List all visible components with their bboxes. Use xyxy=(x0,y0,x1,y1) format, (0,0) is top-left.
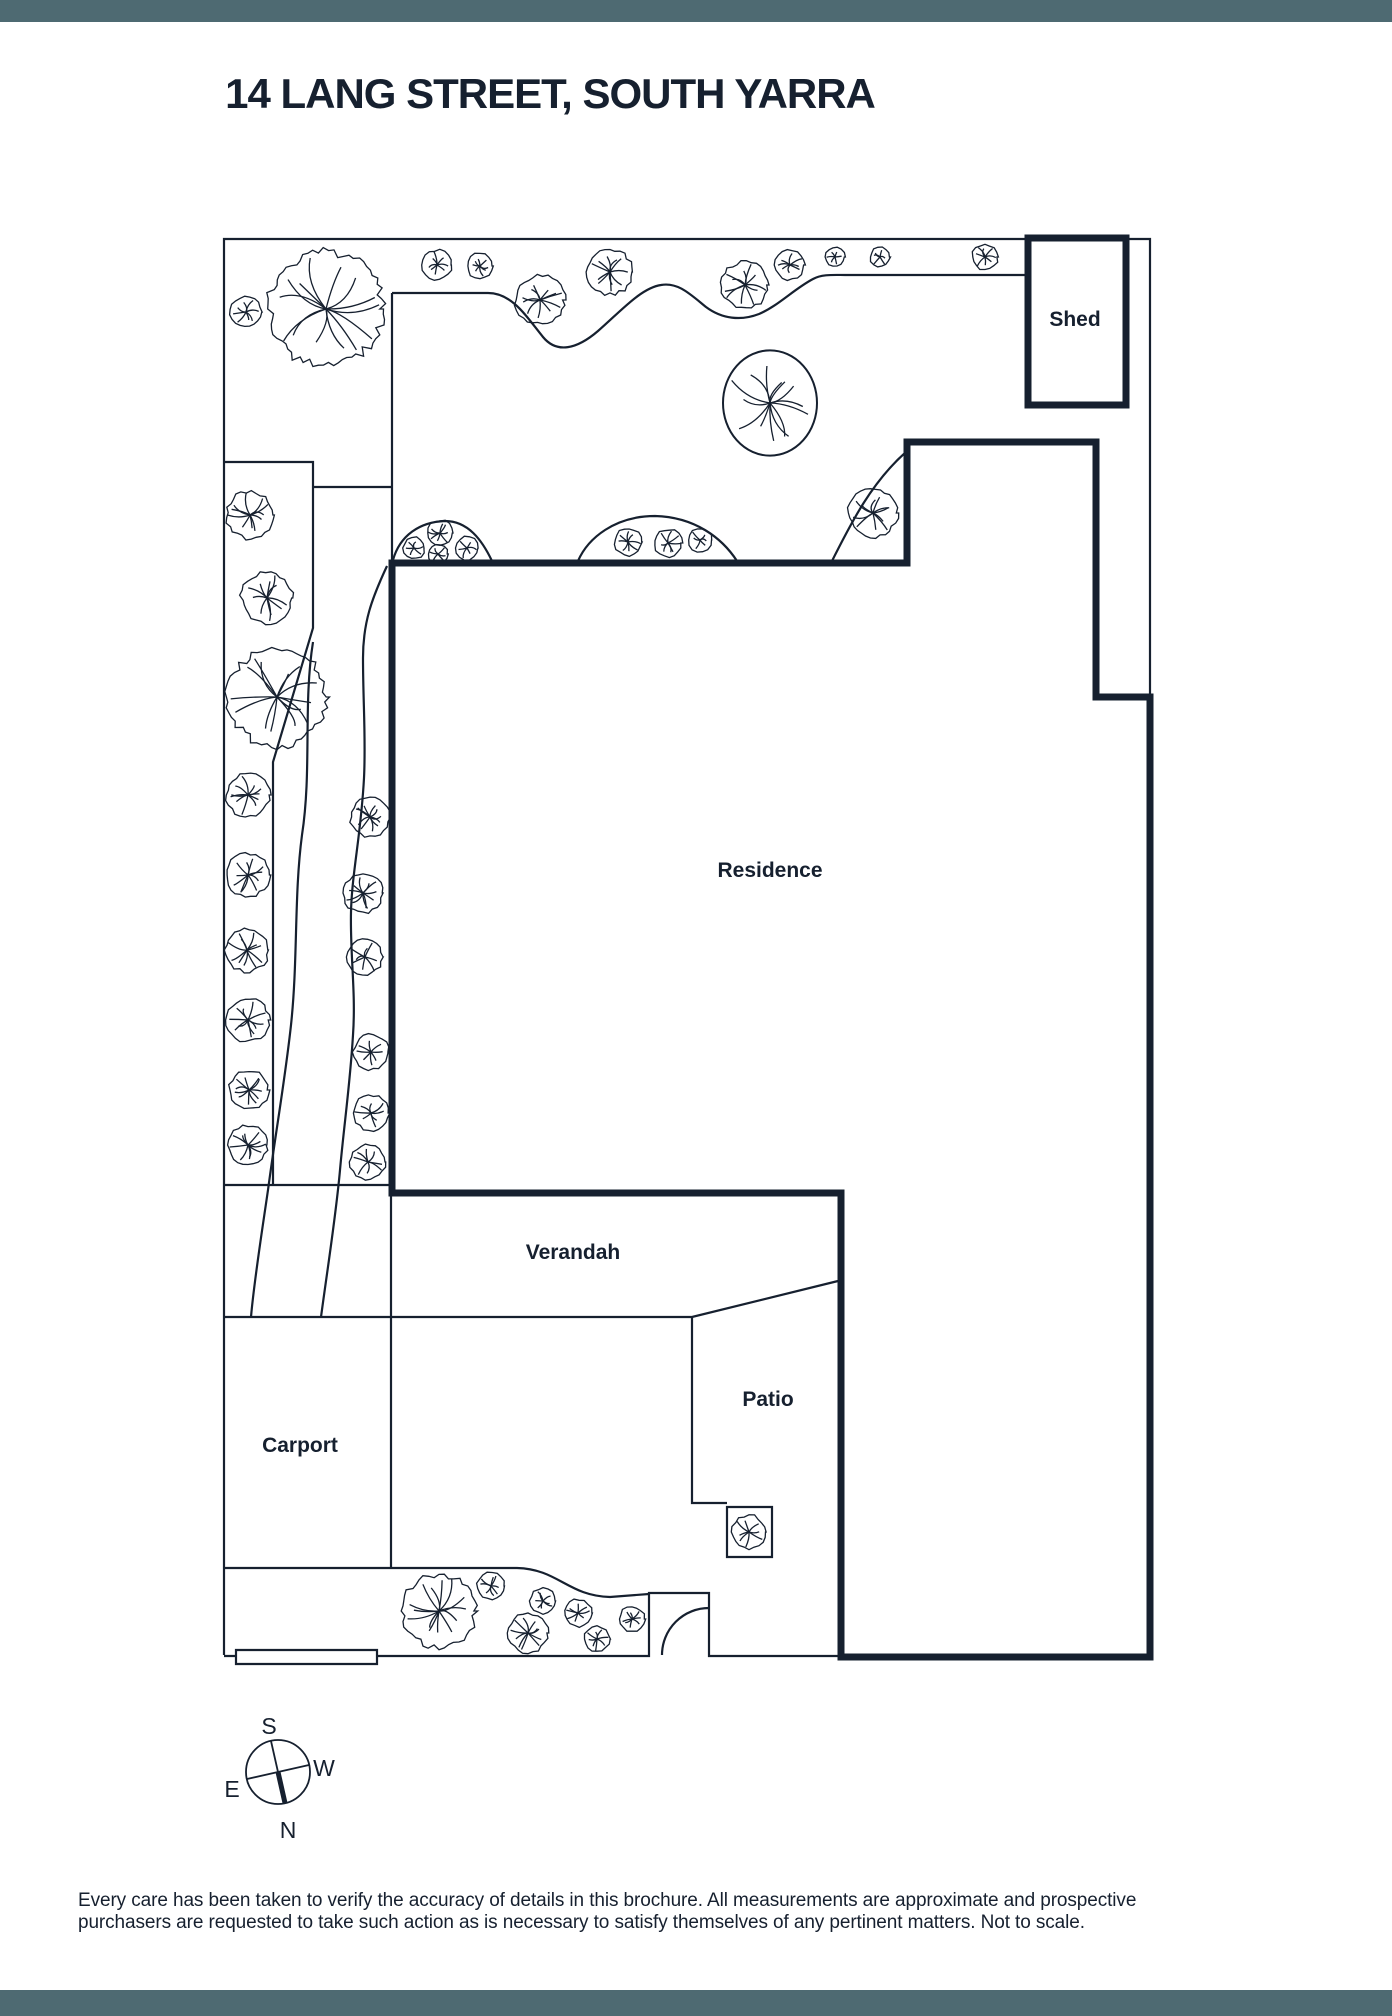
plan-label-carport: Carport xyxy=(262,1434,338,1457)
tree-symbol xyxy=(226,999,271,1042)
disclaimer-line-2: purchasers are requested to take such ac… xyxy=(78,1912,1328,1934)
tree-branch xyxy=(261,598,267,614)
tree-branch xyxy=(237,863,248,875)
tree-symbol xyxy=(267,248,386,367)
tree-branch xyxy=(668,543,681,544)
tree-symbol xyxy=(774,250,805,281)
tree-branch xyxy=(481,1579,491,1586)
tree-branch xyxy=(440,533,448,534)
tree-branch xyxy=(352,949,365,957)
tree-branch xyxy=(832,257,836,262)
tree-branch xyxy=(661,533,668,543)
labels-layer: ShedResidenceVerandahPatioCarport xyxy=(262,308,1101,1457)
tree-symbol xyxy=(352,1034,388,1071)
tree-branch xyxy=(696,540,700,549)
plan-line-20 xyxy=(831,452,906,563)
tree-branch xyxy=(367,1162,369,1173)
tree-branch xyxy=(588,1633,598,1639)
tree-branch xyxy=(245,493,250,516)
plan-label-residence: Residence xyxy=(717,859,822,882)
tree-branch xyxy=(243,1009,248,1020)
tree-symbol xyxy=(401,1574,478,1650)
tree-branch xyxy=(770,403,789,436)
tree-symbol xyxy=(349,1144,385,1180)
disclaimer-line-1: Every care has been taken to verify the … xyxy=(78,1890,1328,1912)
tree-branch xyxy=(238,308,246,312)
tree-branch xyxy=(534,285,540,300)
tree-branch xyxy=(486,1586,491,1593)
compass-needle-e xyxy=(247,1772,278,1779)
tree-branch xyxy=(410,548,414,555)
tree-branch xyxy=(235,1020,248,1030)
tree-branch xyxy=(538,300,540,318)
tree-branch xyxy=(249,1090,250,1105)
tree-branch xyxy=(440,533,448,543)
plan-line-2 xyxy=(662,1608,709,1655)
tree-branch xyxy=(240,1145,248,1160)
tree-branch xyxy=(732,380,770,403)
tree-symbol xyxy=(228,1125,268,1164)
tree-symbol xyxy=(871,247,891,267)
tree-symbol xyxy=(477,1572,505,1600)
tree-branch xyxy=(761,403,770,426)
tree-symbol xyxy=(229,1072,270,1109)
tree-branch xyxy=(371,1052,383,1053)
tree-branch xyxy=(255,659,277,697)
tree-branch xyxy=(358,1162,368,1175)
tree-symbol xyxy=(226,773,272,817)
tree-branch xyxy=(267,598,287,605)
disclaimer-text: Every care has been taken to verify the … xyxy=(78,1890,1328,1934)
tree-branch xyxy=(597,1639,605,1646)
tree-symbol xyxy=(614,529,642,556)
tree-branch xyxy=(589,1639,597,1640)
tree-symbol xyxy=(689,529,712,552)
tree-symbol xyxy=(586,250,632,296)
tree-branch xyxy=(439,1580,442,1611)
tree-branch xyxy=(788,265,790,273)
tree-branch xyxy=(434,252,437,265)
tree-branch xyxy=(326,309,344,348)
compass-label-s: S xyxy=(261,1713,276,1739)
tree-branch xyxy=(874,257,880,264)
tree-symbol xyxy=(227,853,271,898)
plan-line-8 xyxy=(321,566,387,1317)
tree-symbol xyxy=(655,530,683,558)
tree-symbol xyxy=(240,572,294,625)
tree-branch xyxy=(371,1052,376,1061)
tree-branch xyxy=(242,795,248,815)
tree-symbol xyxy=(972,244,998,269)
plan-line-7 xyxy=(251,642,313,1317)
tree-branch xyxy=(413,542,415,548)
tree-symbol xyxy=(403,537,425,559)
tree-branch xyxy=(835,256,842,257)
tree-branch xyxy=(414,547,423,549)
tree-branch xyxy=(700,540,705,545)
tree-symbol xyxy=(353,1095,390,1132)
tree-branch xyxy=(741,285,745,304)
tree-symbol xyxy=(723,350,817,455)
compass-label-n: N xyxy=(280,1817,297,1843)
tree-branch xyxy=(363,1113,371,1119)
tree-symbol xyxy=(585,1626,611,1652)
tree-symbol xyxy=(224,928,268,973)
site-plan-diagram: ShedResidenceVerandahPatioCarportSWEN xyxy=(0,0,1392,2016)
compass-rose: SWEN xyxy=(224,1713,335,1843)
tree-branch xyxy=(228,515,250,517)
tree-branch xyxy=(326,298,375,310)
plan-label-shed: Shed xyxy=(1049,308,1100,331)
tree-branch xyxy=(623,542,628,551)
tree-branch xyxy=(632,1619,639,1624)
tree-branch xyxy=(597,1637,608,1639)
tree-symbol xyxy=(507,1613,549,1654)
plan-line-13 xyxy=(692,1317,727,1503)
plan-label-patio: Patio xyxy=(742,1388,793,1411)
tree-symbol xyxy=(226,491,274,540)
tree-branch xyxy=(610,271,628,273)
tree-branch xyxy=(368,1152,374,1163)
tree-symbol xyxy=(350,797,391,837)
tree-branch xyxy=(460,541,467,548)
compass-label-e: E xyxy=(224,1776,239,1802)
tree-symbol xyxy=(343,874,383,914)
tree-symbol xyxy=(468,253,493,278)
tree-branch xyxy=(363,957,365,970)
tree-branch xyxy=(438,548,445,554)
tree-branch xyxy=(232,950,248,960)
tree-branch xyxy=(229,1019,248,1020)
tree-branch xyxy=(790,259,802,265)
tree-symbol xyxy=(428,520,453,545)
tree-branch xyxy=(370,1104,372,1114)
tree-branch xyxy=(437,265,444,270)
plan-line-18 xyxy=(393,521,492,561)
compass-needle-w xyxy=(278,1765,309,1772)
tree-symbol xyxy=(456,536,479,560)
bold-walls-layer xyxy=(392,238,1150,1657)
tree-symbol xyxy=(529,1588,555,1615)
residence-outline xyxy=(392,442,1150,1657)
thin-lines-layer xyxy=(224,239,1150,1664)
plan-line-4 xyxy=(225,462,313,1185)
tree-branch xyxy=(371,1113,376,1127)
tree-branch xyxy=(985,257,986,265)
plan-line-3 xyxy=(236,1650,377,1664)
tree-symbol xyxy=(565,1599,593,1627)
bottom-accent-bar xyxy=(0,1990,1392,2016)
tree-symbol xyxy=(225,648,330,750)
plan-label-verandah: Verandah xyxy=(526,1241,621,1264)
tree-branch xyxy=(293,309,326,335)
tree-branch xyxy=(432,529,441,533)
tree-branch xyxy=(599,261,610,272)
tree-branch xyxy=(668,536,679,543)
trees-layer xyxy=(224,244,998,1653)
tree-branch xyxy=(528,1633,539,1646)
tree-branch xyxy=(480,260,486,266)
tree-branch xyxy=(361,817,370,829)
tree-symbol xyxy=(720,261,769,308)
tree-branch xyxy=(237,875,249,876)
tree-branch xyxy=(235,786,248,795)
tree-branch xyxy=(354,1112,371,1113)
tree-branch xyxy=(408,1611,439,1619)
tree-branch xyxy=(316,309,327,342)
plan-line-19 xyxy=(578,516,737,561)
tree-symbol xyxy=(514,274,566,323)
tree-branch xyxy=(880,257,885,264)
tree-branch xyxy=(540,300,560,307)
tree-symbol xyxy=(848,489,899,539)
compass-needle-n xyxy=(278,1772,285,1803)
tree-branch xyxy=(538,1601,543,1608)
tree-branch xyxy=(528,300,540,314)
plan-line-15 xyxy=(391,1568,649,1597)
tree-branch xyxy=(835,257,837,264)
tree-branch xyxy=(467,548,470,554)
tree-symbol xyxy=(230,296,263,326)
tree-symbol xyxy=(620,1607,646,1631)
tree-symbol xyxy=(422,249,452,280)
tree-branch xyxy=(628,541,641,543)
compass-needle-s xyxy=(271,1741,278,1772)
tree-branch xyxy=(246,310,259,312)
tree-branch xyxy=(770,403,774,441)
plan-line-0 xyxy=(224,239,1150,1655)
tree-symbol xyxy=(825,247,845,266)
tree-branch xyxy=(668,543,671,552)
tree-branch xyxy=(435,548,438,554)
tree-branch xyxy=(371,1044,381,1052)
compass-label-w: W xyxy=(313,1755,335,1781)
tree-branch xyxy=(230,1145,248,1147)
tree-branch xyxy=(260,584,267,598)
tree-branch xyxy=(770,403,808,414)
tree-branch xyxy=(827,257,835,258)
tree-branch xyxy=(250,515,252,528)
tree-branch xyxy=(543,1596,551,1601)
tree-branch xyxy=(977,257,985,266)
plan-line-12 xyxy=(392,1281,838,1317)
plan-line-16 xyxy=(392,275,1028,348)
